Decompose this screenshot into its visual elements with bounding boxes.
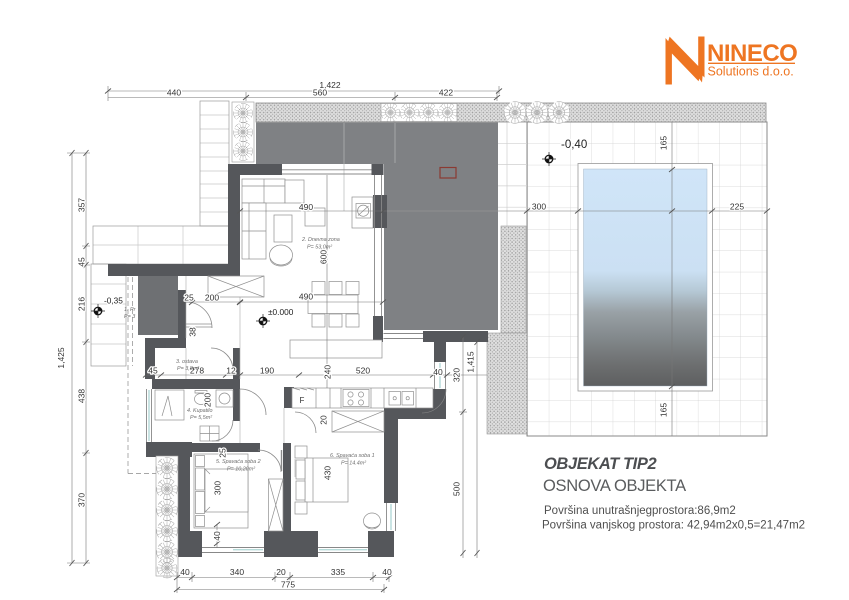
svg-text:300: 300 bbox=[532, 202, 546, 212]
svg-text:2. Dnevna zona: 2. Dnevna zona bbox=[301, 237, 340, 243]
svg-text:-0,35: -0,35 bbox=[104, 296, 123, 306]
svg-text:40: 40 bbox=[212, 531, 222, 541]
svg-text:45: 45 bbox=[148, 366, 158, 376]
svg-text:6. Spavaća soba 1: 6. Spavaća soba 1 bbox=[330, 453, 375, 459]
svg-text:5. Spavaća soba 2: 5. Spavaća soba 2 bbox=[216, 459, 261, 465]
svg-text:200: 200 bbox=[203, 393, 213, 407]
svg-text:430: 430 bbox=[323, 466, 333, 480]
svg-text:520: 520 bbox=[356, 366, 370, 376]
svg-text:165: 165 bbox=[659, 403, 669, 417]
svg-text:38: 38 bbox=[188, 327, 198, 337]
svg-text:OSNOVA OBJEKTA: OSNOVA OBJEKTA bbox=[543, 477, 686, 495]
svg-text:225: 225 bbox=[730, 202, 744, 212]
svg-text:165: 165 bbox=[659, 136, 669, 150]
svg-text:25: 25 bbox=[184, 293, 194, 303]
svg-text:370: 370 bbox=[77, 493, 87, 507]
svg-text:20: 20 bbox=[319, 415, 329, 425]
svg-text:40: 40 bbox=[180, 567, 190, 577]
svg-text:560: 560 bbox=[313, 88, 327, 98]
svg-text:216: 216 bbox=[77, 297, 87, 311]
svg-text:600: 600 bbox=[319, 250, 329, 264]
svg-text:40: 40 bbox=[382, 567, 392, 577]
svg-text:P= 53,0m²: P= 53,0m² bbox=[307, 245, 332, 251]
svg-text:45: 45 bbox=[77, 257, 87, 267]
svg-text:-0,40: -0,40 bbox=[561, 139, 587, 151]
svg-text:P= 3,8m²: P= 3,8m² bbox=[177, 366, 199, 372]
svg-text:P= 5,5m²: P= 5,5m² bbox=[190, 415, 212, 421]
svg-text:500: 500 bbox=[452, 482, 462, 496]
svg-text:1,415: 1,415 bbox=[466, 351, 476, 373]
svg-text:25: 25 bbox=[218, 448, 228, 458]
svg-text:1. Pr: 1. Pr bbox=[124, 307, 136, 313]
svg-text:775: 775 bbox=[281, 580, 295, 590]
svg-text:F: F bbox=[300, 396, 305, 405]
svg-text:440: 440 bbox=[167, 88, 181, 98]
svg-text:Površina unutrašnjegprostora:8: Površina unutrašnjegprostora:86,9m2 bbox=[544, 505, 736, 517]
svg-text:200: 200 bbox=[205, 293, 219, 303]
svg-text:P= 14.4m²: P= 14.4m² bbox=[341, 461, 366, 467]
svg-text:335: 335 bbox=[331, 567, 345, 577]
svg-text:Površina vanjskog prostora: 42: Površina vanjskog prostora: 42,94m2x0,5=… bbox=[542, 520, 805, 532]
svg-text:12: 12 bbox=[226, 366, 236, 376]
svg-text:340: 340 bbox=[230, 567, 244, 577]
svg-text:4. Kupatilo: 4. Kupatilo bbox=[187, 408, 212, 414]
svg-text:320: 320 bbox=[452, 368, 462, 382]
svg-text:3. ostava: 3. ostava bbox=[176, 359, 198, 365]
svg-text:1,425: 1,425 bbox=[56, 347, 66, 369]
svg-text:OBJEKAT TIP2: OBJEKAT TIP2 bbox=[544, 455, 656, 473]
svg-text:240: 240 bbox=[323, 365, 333, 379]
svg-text:300: 300 bbox=[213, 481, 223, 495]
svg-text:490: 490 bbox=[299, 292, 313, 302]
svg-text:422: 422 bbox=[439, 88, 453, 98]
svg-text:190: 190 bbox=[260, 366, 274, 376]
svg-text:±0.000: ±0.000 bbox=[268, 307, 294, 317]
svg-text:490: 490 bbox=[299, 202, 313, 212]
svg-text:357: 357 bbox=[77, 198, 87, 212]
svg-text:438: 438 bbox=[77, 389, 87, 403]
svg-text:P= 3: P= 3 bbox=[124, 314, 135, 320]
svg-text:P= 10,20m²: P= 10,20m² bbox=[227, 467, 255, 473]
svg-text:Solutions d.o.o.: Solutions d.o.o. bbox=[708, 65, 794, 79]
svg-text:20: 20 bbox=[276, 567, 286, 577]
svg-text:40: 40 bbox=[433, 367, 443, 377]
